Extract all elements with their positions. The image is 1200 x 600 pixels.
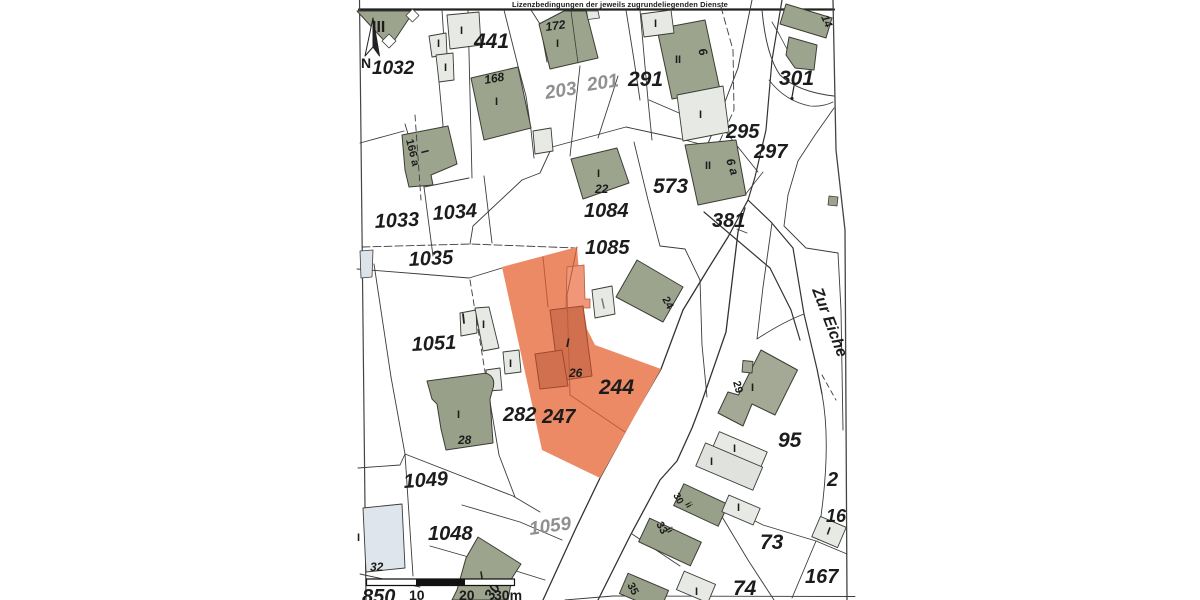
svg-text:I: I — [737, 502, 740, 514]
svg-text:291: 291 — [627, 68, 663, 91]
svg-text:I: I — [437, 38, 440, 50]
svg-text:I: I — [444, 62, 447, 74]
svg-text:167: 167 — [805, 566, 839, 588]
svg-text:I: I — [482, 319, 485, 331]
svg-text:22: 22 — [594, 182, 609, 196]
svg-text:30m: 30m — [494, 587, 522, 600]
svg-text:I: I — [556, 38, 559, 50]
svg-text:I: I — [457, 409, 460, 421]
svg-text:95: 95 — [778, 429, 802, 452]
svg-text:N: N — [361, 55, 371, 71]
svg-text:172: 172 — [544, 17, 566, 34]
svg-text:1032: 1032 — [372, 58, 415, 79]
svg-text:I: I — [495, 96, 498, 108]
svg-text:297: 297 — [753, 141, 788, 163]
svg-text:I: I — [509, 358, 512, 370]
svg-text:1085: 1085 — [585, 237, 630, 259]
svg-text:573: 573 — [653, 175, 688, 198]
svg-text:282: 282 — [502, 404, 536, 426]
svg-text:850: 850 — [362, 586, 395, 600]
svg-text:I: I — [597, 168, 600, 180]
svg-text:10: 10 — [409, 587, 425, 600]
svg-text:73: 73 — [760, 531, 784, 554]
svg-text:16: 16 — [826, 506, 847, 526]
svg-text:26: 26 — [568, 366, 583, 380]
svg-text:I: I — [654, 18, 657, 30]
svg-text:381: 381 — [712, 210, 745, 232]
svg-text:I: I — [751, 382, 754, 394]
svg-text:I: I — [460, 25, 463, 37]
svg-text:Lizenzbedingungen der jeweils: Lizenzbedingungen der jeweils zugrundeli… — [512, 0, 728, 9]
svg-text:I: I — [733, 443, 736, 455]
svg-text:1084: 1084 — [584, 200, 629, 222]
svg-text:2: 2 — [826, 469, 838, 491]
svg-text:II: II — [705, 160, 711, 172]
svg-text:295: 295 — [725, 121, 760, 143]
svg-text:II: II — [675, 54, 681, 66]
svg-text:I: I — [699, 109, 702, 121]
svg-text:1033: 1033 — [374, 209, 420, 233]
svg-text:244: 244 — [598, 376, 634, 399]
svg-text:1034: 1034 — [432, 200, 478, 225]
svg-text:I: I — [710, 456, 713, 468]
svg-text:I: I — [695, 586, 698, 598]
svg-text:441: 441 — [473, 30, 509, 53]
svg-text:1051: 1051 — [411, 332, 457, 356]
svg-text:1048: 1048 — [428, 523, 473, 545]
svg-text:1035: 1035 — [408, 247, 454, 271]
svg-text:I: I — [357, 532, 360, 544]
svg-text:1049: 1049 — [403, 468, 450, 493]
svg-text:74: 74 — [733, 577, 757, 600]
svg-text:20: 20 — [459, 587, 475, 600]
svg-text:247: 247 — [541, 406, 576, 428]
svg-text:III: III — [372, 19, 385, 36]
svg-text:32: 32 — [370, 560, 384, 574]
svg-text:28: 28 — [457, 433, 472, 447]
svg-text:301: 301 — [779, 67, 814, 90]
